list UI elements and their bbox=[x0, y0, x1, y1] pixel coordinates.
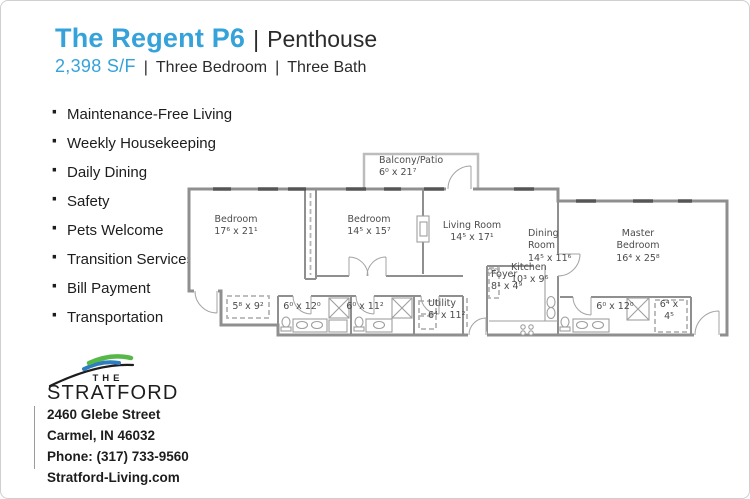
spec-divider: | bbox=[275, 59, 279, 77]
room-label-dining-room: Dining Room 14⁵ x 11⁶ bbox=[528, 228, 578, 265]
contact-block: 2460 Glebe Street Carmel, IN 46032 Phone… bbox=[47, 404, 189, 488]
room-label-balcony: Balcony/Patio 6⁰ x 21⁷ bbox=[379, 155, 489, 180]
list-item: ·Maintenance-Free Living bbox=[51, 100, 232, 129]
amenity-label: Bill Payment bbox=[67, 280, 150, 297]
room-dims: 5⁸ x 9² bbox=[223, 301, 273, 313]
amenity-label: Transition Services bbox=[67, 251, 194, 268]
room-name: Bedroom bbox=[191, 214, 281, 226]
room-dims: 16⁴ x 25⁸ bbox=[601, 253, 675, 265]
room-name: Living Room bbox=[427, 220, 517, 232]
page-title: The Regent P6 bbox=[55, 23, 245, 54]
address-city: Carmel, IN 46032 bbox=[47, 425, 189, 446]
amenity-label: Pets Welcome bbox=[67, 222, 163, 239]
bedroom-count-label: Three Bedroom bbox=[156, 59, 267, 77]
unit-type-label: Penthouse bbox=[267, 26, 377, 53]
header: The Regent P6 | Penthouse 2,398 S/F | Th… bbox=[55, 23, 377, 77]
flyer-card: The Regent P6 | Penthouse 2,398 S/F | Th… bbox=[0, 0, 750, 499]
room-label-flex-room: 5⁸ x 9² bbox=[223, 301, 273, 313]
room-dims: 8¹ x 4⁹ bbox=[491, 281, 531, 293]
title-divider: | bbox=[253, 26, 259, 53]
room-dims: 6⁰ x 12⁰ bbox=[587, 301, 643, 313]
bath-count-label: Three Bath bbox=[287, 59, 366, 77]
address-street: 2460 Glebe Street bbox=[47, 404, 189, 425]
room-label-closet: 6⁴ x 4⁵ bbox=[655, 299, 683, 324]
room-label-living-room: Living Room 14⁵ x 17¹ bbox=[427, 220, 517, 245]
sqft-label: 2,398 S/F bbox=[55, 56, 136, 77]
bullet-icon: · bbox=[51, 275, 59, 299]
room-dims: 6⁰ x 11² bbox=[341, 301, 389, 313]
room-dims: 6⁴ x 11² bbox=[428, 310, 480, 322]
room-name: Foyer bbox=[491, 269, 531, 281]
room-label-utility: Utility 6⁴ x 11² bbox=[428, 298, 480, 323]
room-label-master-bath: 6⁰ x 12⁰ bbox=[587, 301, 643, 313]
room-name: Master Bedroom bbox=[601, 228, 675, 253]
logo-name: STRATFORD bbox=[47, 382, 169, 405]
bullet-icon: · bbox=[51, 217, 59, 241]
room-label-bedroom-1: Bedroom 17⁶ x 21¹ bbox=[191, 214, 281, 239]
bullet-icon: · bbox=[51, 159, 59, 183]
room-name: Dining Room bbox=[528, 228, 578, 253]
room-dims: 17⁶ x 21¹ bbox=[191, 226, 281, 238]
room-name: Bedroom bbox=[324, 214, 414, 226]
room-dims: 14⁵ x 17¹ bbox=[427, 232, 517, 244]
room-label-master-bedroom: Master Bedroom 16⁴ x 25⁸ bbox=[601, 228, 675, 265]
room-label-bath-2: 6⁰ x 11² bbox=[341, 301, 389, 313]
room-name: Balcony/Patio bbox=[379, 155, 489, 167]
room-dims: 14⁵ x 15⁷ bbox=[324, 226, 414, 238]
spec-divider: | bbox=[144, 59, 148, 77]
bullet-icon: · bbox=[51, 130, 59, 154]
floor-plan: Balcony/Patio 6⁰ x 21⁷ Bedroom 17⁶ x 21¹… bbox=[183, 144, 745, 349]
room-dims: 6⁴ x 4⁵ bbox=[655, 299, 683, 324]
divider-line bbox=[34, 406, 35, 469]
bullet-icon: · bbox=[51, 101, 59, 125]
bullet-icon: · bbox=[51, 304, 59, 328]
address-website: Stratford-Living.com bbox=[47, 467, 189, 488]
amenity-label: Safety bbox=[67, 193, 110, 210]
amenity-label: Maintenance-Free Living bbox=[67, 106, 232, 123]
room-label-bath-1: 6⁰ x 12⁰ bbox=[277, 301, 327, 313]
room-dims: 6⁰ x 12⁰ bbox=[277, 301, 327, 313]
amenity-label: Transportation bbox=[67, 309, 163, 326]
amenity-label: Daily Dining bbox=[67, 164, 147, 181]
address-phone: Phone: (317) 733-9560 bbox=[47, 446, 189, 467]
room-dims: 6⁰ x 21⁷ bbox=[379, 167, 489, 179]
bullet-icon: · bbox=[51, 246, 59, 270]
room-label-bedroom-2: Bedroom 14⁵ x 15⁷ bbox=[324, 214, 414, 239]
stratford-logo: THE STRATFORD bbox=[47, 350, 169, 404]
room-name: Utility bbox=[428, 298, 480, 310]
room-label-foyer: Foyer 8¹ x 4⁹ bbox=[491, 269, 531, 294]
bullet-icon: · bbox=[51, 188, 59, 212]
